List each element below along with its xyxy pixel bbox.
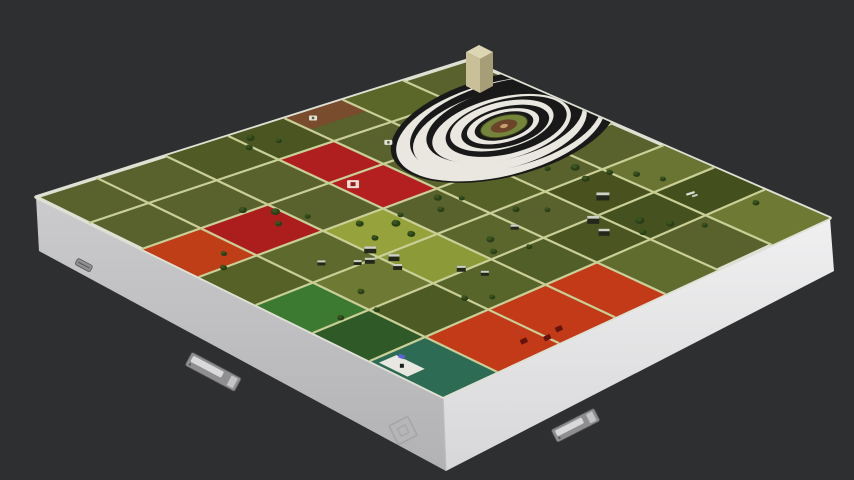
tree-crown bbox=[438, 206, 442, 210]
tree-crown bbox=[392, 220, 398, 225]
tree-crown bbox=[633, 171, 637, 175]
tree-crown bbox=[247, 135, 252, 139]
render-viewport bbox=[0, 0, 854, 480]
tree-crown bbox=[487, 236, 492, 240]
tree-crown bbox=[607, 170, 611, 174]
scene-svg bbox=[0, 0, 854, 480]
tree-crown bbox=[526, 244, 530, 247]
tree-crown bbox=[246, 145, 250, 149]
tree-crown bbox=[276, 221, 280, 225]
tree-crown bbox=[491, 249, 495, 253]
watchtower-front bbox=[466, 52, 480, 93]
tree-crown bbox=[221, 251, 225, 254]
model-building-roof bbox=[354, 260, 362, 262]
tree-crown bbox=[636, 217, 642, 222]
model-building-roof bbox=[587, 216, 599, 219]
tree-crown bbox=[459, 196, 463, 199]
model-building-roof bbox=[388, 254, 399, 256]
tree-crown bbox=[356, 220, 361, 224]
tree-crown bbox=[398, 212, 402, 215]
tree-crown bbox=[461, 295, 465, 299]
model-building-roof bbox=[364, 246, 376, 248]
tree-crown bbox=[513, 206, 517, 210]
tree-crown bbox=[582, 176, 587, 180]
tree-crown bbox=[753, 200, 757, 204]
tree-crown bbox=[434, 194, 439, 198]
model-building-roof bbox=[511, 225, 519, 227]
watchtower-side bbox=[480, 52, 493, 93]
model-building-roof bbox=[457, 266, 466, 268]
tree-crown bbox=[702, 223, 706, 226]
tree-crown bbox=[667, 221, 672, 225]
tree-crown bbox=[545, 166, 549, 169]
model-building-roof bbox=[365, 258, 375, 260]
tree-crown bbox=[239, 207, 244, 211]
tree-crown bbox=[572, 164, 578, 169]
tree-crown bbox=[489, 294, 493, 297]
white-pad-glyph bbox=[400, 364, 404, 368]
model-building-roof bbox=[317, 260, 325, 262]
tree-crown bbox=[220, 265, 224, 269]
tree-crown bbox=[338, 315, 342, 319]
tree-crown bbox=[545, 207, 549, 210]
model-building-roof bbox=[599, 229, 610, 231]
tree-crown bbox=[276, 138, 280, 141]
tree-crown bbox=[358, 289, 362, 293]
tree-crown bbox=[660, 176, 664, 179]
model-building-roof bbox=[596, 192, 609, 195]
tree-crown bbox=[272, 208, 278, 213]
tree-crown bbox=[374, 307, 378, 310]
map-symbol-dot bbox=[387, 141, 389, 143]
red-parcel-symbol-core bbox=[351, 182, 356, 186]
tree-crown bbox=[640, 229, 644, 233]
tree-crown bbox=[408, 231, 413, 235]
model-building-roof bbox=[481, 271, 489, 273]
map-symbol-dot bbox=[312, 117, 314, 119]
tree-crown bbox=[305, 214, 309, 217]
model-building-roof bbox=[393, 264, 402, 266]
tree-crown bbox=[372, 235, 376, 239]
